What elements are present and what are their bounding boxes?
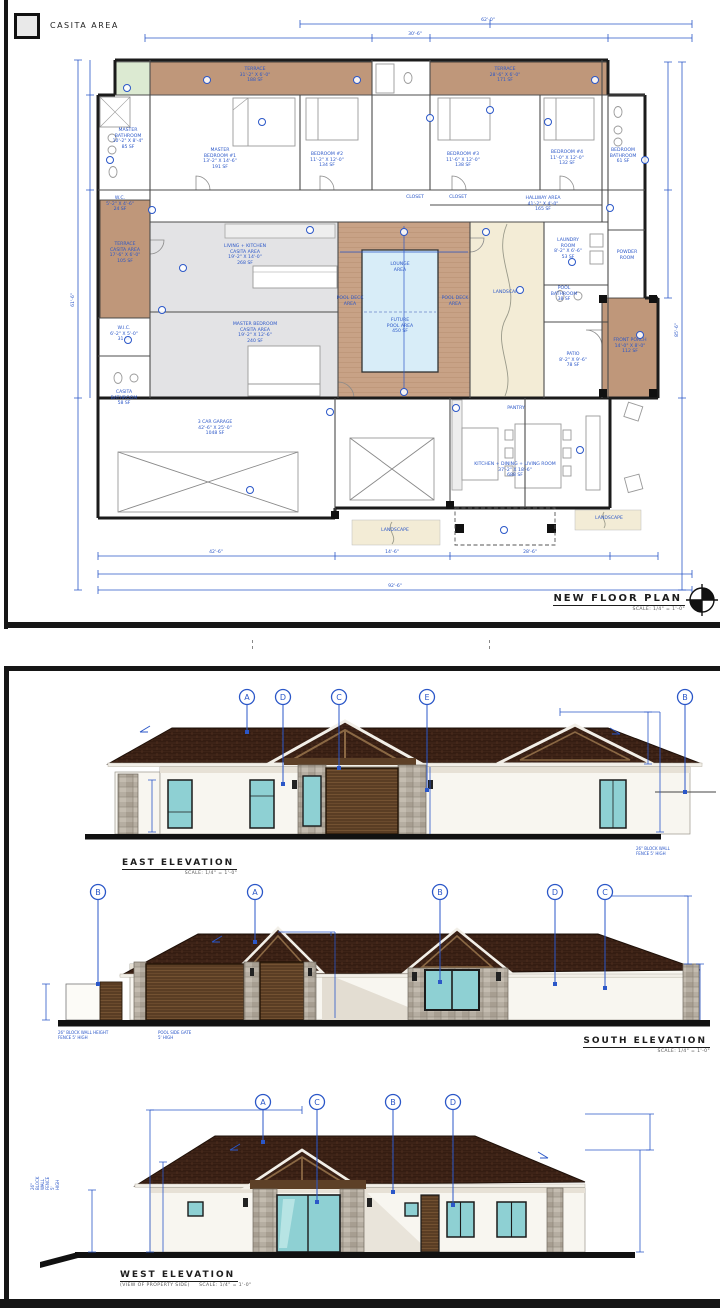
west-elevation-scale: SCALE: 1/4" = 1'-0" (199, 1283, 252, 1288)
room-label-bed4: BEDROOM #4 11'-0" X 12'-0" 132 SF (536, 150, 598, 167)
north-arrow (686, 584, 718, 616)
room-label-living-casita: LIVING + KITCHEN CASITA AREA 19'-2" X 14… (200, 244, 290, 267)
svg-text:14'-6": 14'-6" (385, 549, 399, 555)
west-corner-pier (547, 1188, 563, 1252)
room-label-pool-bath: POOL BATHROOM 38 SF (544, 286, 584, 303)
room-label-garage: 3 CAR GARAGE 42'-6" X 25'-0" 1048 SF (170, 420, 260, 437)
room-label-master-bath: MASTER BATHROOM 10'-2" X 8'-4" 85 SF (100, 128, 156, 151)
room-label-bed-bath: BEDROOM BATHROOM 61 SF (600, 148, 646, 165)
svg-text:C: C (336, 693, 342, 702)
floor-plan-title-text: NEW FLOOR PLAN (553, 593, 685, 606)
svg-text:C: C (602, 888, 608, 897)
plan-tag (516, 286, 524, 294)
plan-tag (544, 118, 552, 126)
south-corner-pier (683, 964, 699, 1020)
east-elevation-drawing: A D C E B (0, 672, 720, 872)
plan-tag (306, 226, 314, 234)
plan-tag (486, 106, 494, 114)
plan-tag (203, 76, 211, 84)
svg-text:B: B (437, 888, 443, 897)
room-label-terrace-b: TERRACE 28'-6" X 6'-0" 171 SF (470, 67, 540, 84)
room-label-master-bed: MASTER BEDROOM #1 13'-2" X 14'-6" 191 SF (180, 148, 260, 171)
plan-tag (326, 408, 334, 416)
svg-text:62'-0": 62'-0" (481, 17, 495, 23)
svg-text:A: A (244, 693, 250, 702)
room-label-closet2: CLOSET (395, 195, 435, 201)
plan-tag (353, 76, 361, 84)
room-label-bed3: BEDROOM #3 11'-6" X 12'-0" 138 SF (428, 152, 498, 169)
south-gable-window (408, 968, 508, 1020)
plan-tag (606, 204, 614, 212)
room-label-pool-deck-l: POOL DECK AREA (335, 296, 365, 307)
room-label-wc: W.C. 5'-2" X 4'-6" 24 SF (98, 196, 142, 213)
room-label-landscape-c: LANDSCAPE (480, 290, 534, 296)
plan-tag (426, 114, 434, 122)
plan-tag (179, 264, 187, 272)
drawing-page: CASITA AREA (0, 0, 720, 1308)
room-label-laundry: LAUNDRY ROOM 8'-2" X 6'-6" 53 SF (546, 238, 590, 261)
plan-tag (482, 228, 490, 236)
plan-tag (400, 388, 408, 396)
svg-text:B: B (95, 888, 101, 897)
plan-tag (452, 404, 460, 412)
east-elevation-note: 26" BLOCK WALL FENCE 5' HIGH (636, 846, 706, 856)
room-label-landscape-br: LANDSCAPE (582, 516, 636, 522)
south-elevation-title: SOUTH ELEVATION SCALE: 1/4" = 1'-0" (560, 1028, 710, 1054)
plan-tag (576, 446, 584, 454)
svg-text:B: B (390, 1098, 396, 1107)
plan-tag (123, 84, 131, 92)
plan-tag (500, 526, 508, 534)
west-elevation-subtitle: (VIEW OF PROPERTY SIDE) (120, 1283, 190, 1288)
east-roof (108, 721, 702, 767)
room-label-patio: PATIO 8'-2" X 9'-6" 78 SF (548, 352, 598, 369)
svg-text:A: A (252, 888, 258, 897)
floor-plan-scale: SCALE: 1/4" = 1'-0" (545, 607, 685, 612)
south-ground (58, 1020, 710, 1027)
plan-tag (591, 76, 599, 84)
svg-text:B: B (682, 693, 688, 702)
room-label-lounge: LOUNGE AREA (372, 262, 428, 273)
plan-tag (148, 206, 156, 214)
east-entry (292, 765, 433, 834)
room-label-closet1: CLOSET (438, 195, 478, 201)
svg-text:28'-6": 28'-6" (523, 549, 537, 555)
room-label-pantry: PANTRY (498, 406, 534, 412)
west-elevation-drawing: A C B D (0, 1072, 720, 1299)
plan-tag (641, 156, 649, 164)
west-roof (135, 1136, 585, 1189)
svg-text:E: E (424, 693, 429, 702)
plan-tag (400, 228, 408, 236)
floor-plan-title: NEW FLOOR PLAN SCALE: 1/4" = 1'-0" (545, 586, 685, 612)
plan-tag (258, 118, 266, 126)
svg-text:D: D (280, 693, 286, 702)
west-elevation-note: 26" BLOCK WALL FENCE 5' HIGH (30, 1176, 60, 1190)
sheet2-top-border (4, 666, 720, 671)
west-entry-doors (243, 1189, 372, 1252)
room-label-landscape-bl: LANDSCAPE (368, 528, 422, 534)
sheet2-bottom-border (0, 1299, 720, 1308)
svg-text:A: A (260, 1098, 266, 1107)
plan-tag (636, 331, 644, 339)
room-label-terrace-a: TERRACE 31'-2" X 6'-0" 188 SF (220, 67, 290, 84)
room-label-casita-bath: CASITA BATHROOM 58 SF (99, 390, 149, 407)
room-label-master-casita: MASTER BEDROOM CASITA AREA 19'-2" X 12'-… (210, 322, 300, 345)
south-elevation-note-1: 26" BLOCK WALL HEIGHT FENCE 5' HIGH (58, 1030, 138, 1040)
floor-plan-drawing: 62'-0" 30'-6" 61'-6" 85'-6" 42'-6" 14'-6… (0, 0, 720, 640)
svg-text:42'-6": 42'-6" (209, 549, 223, 555)
plan-tag (568, 258, 576, 266)
plan-tag (124, 336, 132, 344)
gap-tick (252, 640, 253, 649)
room-label-front-porch: FRONT PORCH 14'-0" X 8'-0" 112 SF (604, 338, 656, 355)
plan-tag (246, 486, 254, 494)
east-ground (85, 834, 661, 840)
plan-tag (158, 306, 166, 314)
svg-text:D: D (552, 888, 558, 897)
svg-text:92'-6": 92'-6" (388, 583, 402, 589)
svg-text:C: C (314, 1098, 320, 1107)
svg-text:85'-6": 85'-6" (674, 323, 680, 337)
room-label-future-pool: FUTURE POOL AREA 450 SF (372, 318, 428, 335)
room-label-hallway: HALLWAY AREA 41'-2" X 4'-0" 165 SF (500, 196, 586, 213)
room-label-terrace-casita: TERRACE CASITA AREA 17'-6" X 6'-0" 105 S… (101, 242, 149, 265)
plan-tag (106, 156, 114, 164)
room-label-powder: POWDER ROOM (608, 250, 646, 261)
south-garage-doors (134, 962, 316, 1020)
svg-text:D: D (450, 1098, 456, 1107)
room-label-pool-deck-r: POOL DECK AREA (438, 296, 472, 307)
gap-tick (489, 640, 490, 649)
room-label-bed2: BEDROOM #2 11'-2" X 12'-0" 134 SF (292, 152, 362, 169)
west-elevation-title: WEST ELEVATION (VIEW OF PROPERTY SIDE) S… (120, 1262, 252, 1288)
south-elevation-note-2: POOL SIDE GATE 5' HIGH (158, 1030, 228, 1040)
svg-text:61'-6": 61'-6" (70, 293, 76, 307)
svg-text:30'-6": 30'-6" (408, 31, 422, 37)
room-label-kdl: KITCHEN + DINING + LIVING ROOM 37'-2" X … (455, 462, 575, 479)
